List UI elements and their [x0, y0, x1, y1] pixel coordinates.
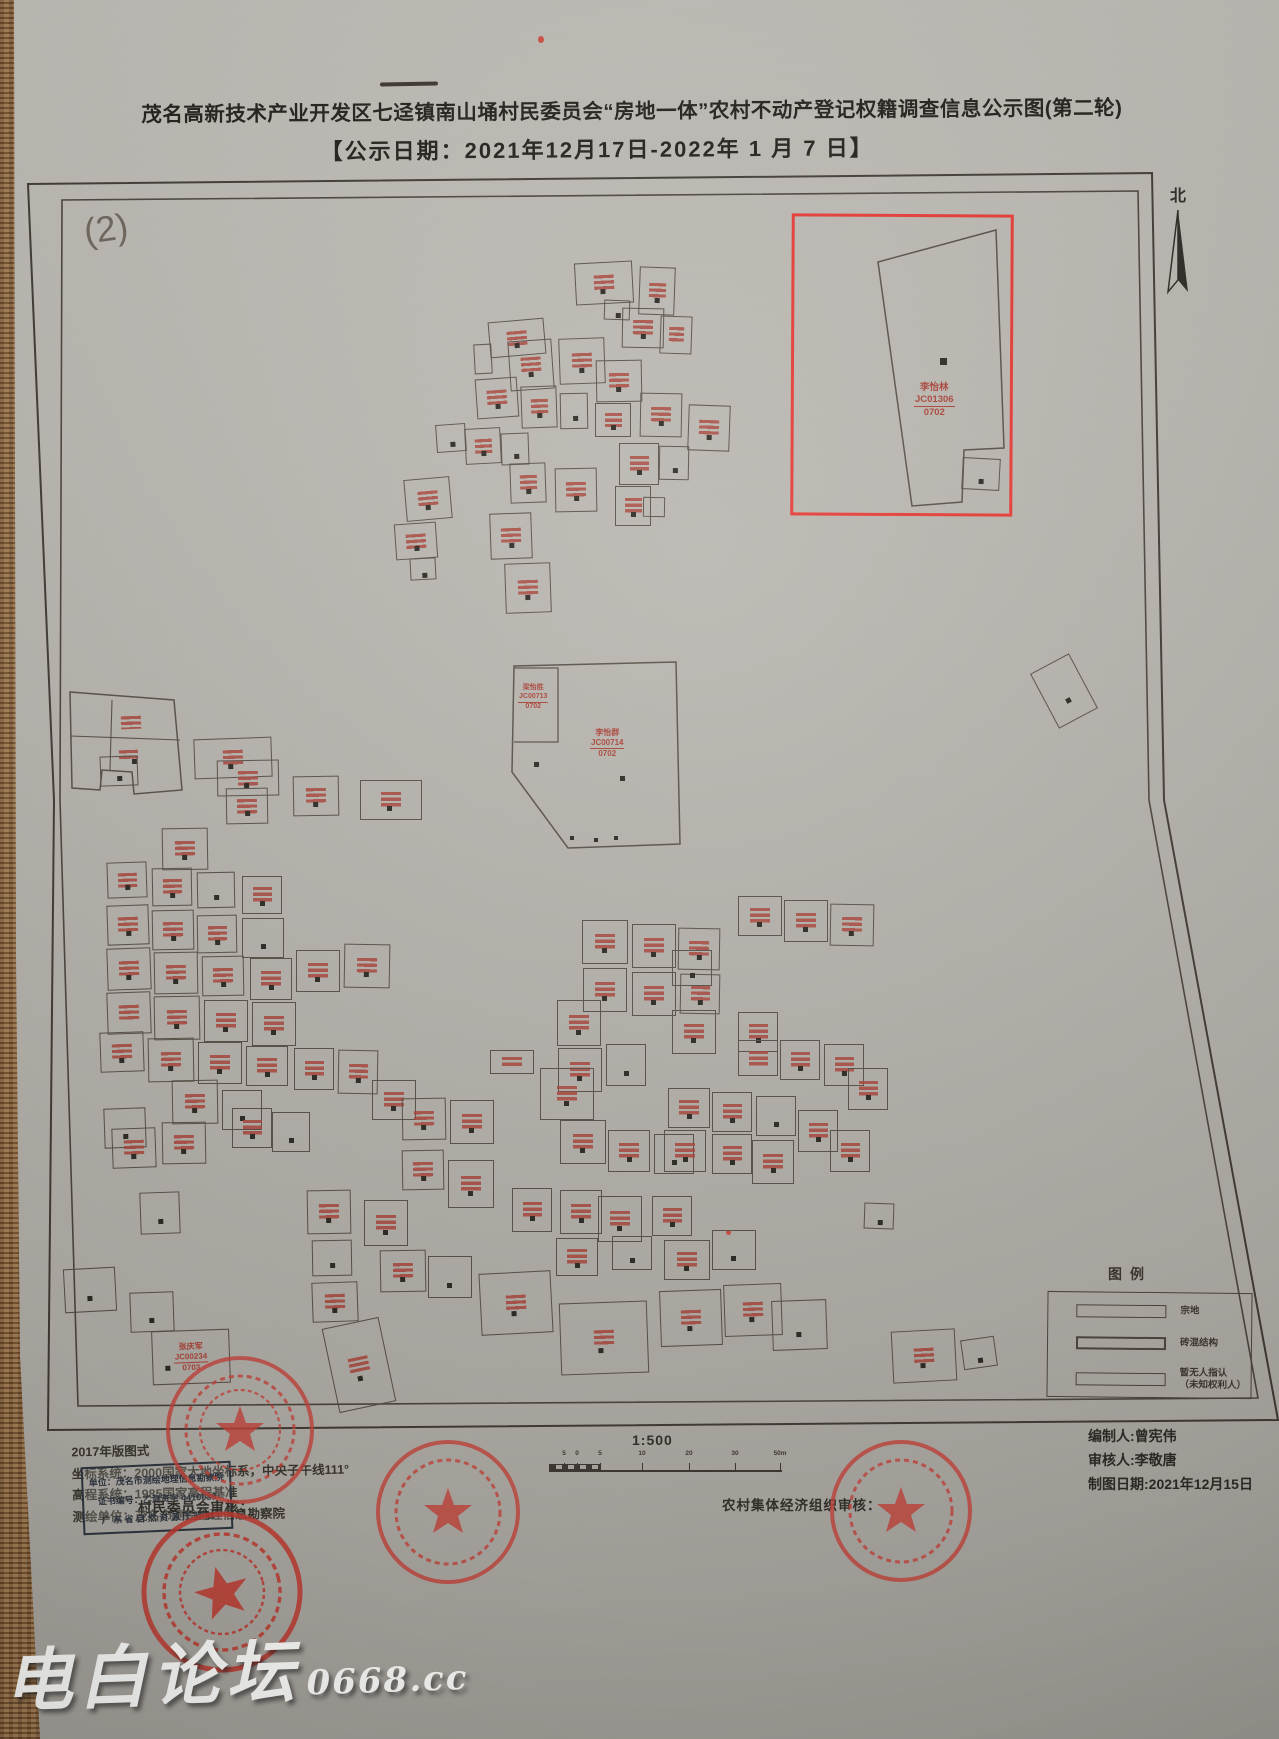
map-parcel — [738, 1040, 778, 1076]
building-marker — [637, 470, 642, 475]
map-parcel — [622, 308, 665, 349]
building-marker — [125, 885, 130, 890]
building-marker — [670, 1222, 675, 1227]
map-parcel — [672, 950, 712, 986]
map-parcel — [364, 1200, 408, 1246]
map-parcel — [162, 828, 209, 871]
map-parcel — [380, 1250, 427, 1293]
watermark-text: 电白论坛 — [3, 1632, 302, 1722]
building-marker — [119, 1058, 124, 1063]
map-parcel — [830, 1130, 870, 1172]
building-marker — [261, 944, 266, 949]
building-marker — [631, 512, 636, 517]
building-marker — [514, 454, 519, 459]
scale-tick-label: 5 — [598, 1450, 602, 1457]
reviewer: 审核人:李敬唐 — [1088, 1448, 1253, 1472]
map-parcel — [556, 1238, 598, 1276]
building-marker — [414, 546, 419, 551]
building-marker — [849, 931, 854, 936]
parcel-label-illegible — [348, 1355, 371, 1375]
building-marker — [940, 358, 947, 365]
map-parcel — [475, 377, 520, 420]
map-parcel — [435, 423, 467, 453]
building-marker — [796, 1332, 801, 1337]
map-parcel — [402, 1098, 447, 1141]
building-marker — [87, 1296, 92, 1301]
map-parcel — [659, 1289, 723, 1347]
map-parcel — [148, 1038, 195, 1083]
building-marker — [528, 372, 533, 377]
map-parcel — [1030, 653, 1098, 728]
building-marker — [171, 936, 176, 941]
map-parcel — [608, 1130, 650, 1172]
map-parcel — [771, 1299, 828, 1351]
building-marker — [495, 404, 500, 409]
building-marker — [673, 468, 678, 473]
map-parcel — [560, 393, 589, 429]
village-review-label: 村民委员会审核： — [138, 1496, 254, 1516]
building-marker — [391, 1106, 396, 1111]
building-marker — [848, 1157, 853, 1162]
legend-label-line2: （未知权利人） — [1180, 1380, 1247, 1392]
building-marker — [687, 1326, 692, 1331]
sheet-number: (2) — [81, 205, 130, 253]
parcel-label-illegible — [557, 1086, 577, 1102]
building-marker — [426, 505, 431, 510]
building-marker — [749, 1317, 754, 1322]
building-marker — [598, 1348, 603, 1353]
parcel-code: JC01306 — [914, 394, 955, 407]
map-parcel — [322, 1317, 397, 1413]
map-parcel — [595, 403, 631, 437]
building-marker — [611, 425, 616, 430]
parcel-code: JC00234 — [174, 1351, 209, 1363]
map-date: 制图日期:2021年12月15日 — [1088, 1472, 1253, 1496]
legend-item-unclaimed: 暂无人指认 （未知权利人） — [1076, 1366, 1247, 1392]
map-parcel — [643, 497, 665, 517]
map-parcel — [582, 920, 628, 964]
building-marker — [730, 1160, 735, 1165]
map-parcel — [752, 1140, 794, 1184]
owner-name: 李怡群 — [595, 728, 619, 737]
scale-tick-label: 10 — [638, 1450, 645, 1457]
legend-item-parcel: 宗地 — [1076, 1304, 1199, 1318]
building-marker — [602, 948, 607, 953]
title-block: 茂名高新技术产业开发区七迳镇南山埇村民委员会“房地一体”农村不动产登记权籍调查信… — [52, 90, 1212, 168]
scale-tick — [577, 1463, 578, 1470]
map-parcel — [596, 360, 643, 403]
map-parcel — [490, 1050, 534, 1074]
building-marker — [468, 1191, 473, 1196]
building-marker — [289, 1138, 294, 1143]
parcel-code: JC00714 — [590, 738, 624, 749]
legend-swatch-parcel — [1076, 1304, 1166, 1318]
building-marker — [630, 1258, 635, 1263]
building-marker — [683, 1157, 688, 1162]
building-marker — [730, 1118, 735, 1123]
map-parcel — [246, 1046, 288, 1086]
map-parcel — [172, 1080, 219, 1125]
parcel-label-illegible — [572, 353, 593, 370]
map-parcel — [428, 1256, 472, 1298]
north-arrow-icon — [1160, 206, 1196, 300]
building-marker — [816, 1137, 821, 1142]
map-parcel — [204, 1000, 248, 1042]
map-parcel — [619, 443, 659, 485]
building-marker — [573, 416, 578, 421]
building-marker — [978, 479, 983, 484]
map-parcel — [99, 755, 138, 786]
map-parcel — [961, 457, 1001, 491]
parcel-label-central-sub: 梁怡胜 JC00713 0702 — [518, 684, 548, 711]
map-parcel — [450, 1100, 494, 1144]
map-parcel — [106, 904, 149, 945]
building-marker — [655, 298, 660, 303]
building-marker — [803, 927, 808, 932]
building-marker — [364, 972, 369, 977]
building-marker — [481, 451, 486, 456]
map-parcel — [154, 996, 201, 1041]
building-marker — [771, 1168, 776, 1173]
building-marker — [149, 1318, 154, 1323]
building-marker — [269, 985, 274, 990]
map-parcel — [520, 385, 557, 428]
map-parcel — [659, 446, 690, 481]
building-marker — [774, 1122, 779, 1127]
building-marker — [641, 334, 646, 339]
map-parcel — [632, 924, 676, 968]
building-marker — [576, 1030, 581, 1035]
map-parcel — [848, 1068, 888, 1110]
map-parcel — [152, 910, 195, 951]
map-parcel — [664, 1240, 710, 1280]
map-parcel — [272, 1112, 310, 1152]
scale-tick-label: 50m — [773, 1450, 786, 1457]
scale-tick — [689, 1463, 690, 1470]
building-marker — [126, 931, 131, 936]
parcel-label-highlight: 李怡林 JC01306 0702 — [914, 382, 955, 419]
owner-name: 李怡林 — [920, 382, 949, 393]
building-marker — [570, 836, 574, 840]
map-parcel — [99, 1031, 144, 1073]
scale-bar: 50510203050m — [549, 1458, 782, 1472]
map-parcel — [560, 1190, 602, 1234]
map-outer-frame — [28, 173, 1278, 1430]
building-marker — [530, 1216, 535, 1221]
building-marker — [526, 489, 531, 494]
map-parcel — [738, 896, 782, 936]
building-marker — [330, 1263, 335, 1268]
map-parcel — [557, 1000, 601, 1046]
map-parcel — [111, 1127, 156, 1169]
scale-tick-label: 0 — [575, 1450, 579, 1457]
building-marker — [271, 1030, 276, 1035]
map-parcel — [659, 315, 692, 354]
building-marker — [659, 421, 664, 426]
map-parcel — [154, 952, 199, 995]
parcel-label-central: 李怡群 JC00714 0702 — [590, 728, 624, 759]
parcel-area: 0702 — [525, 703, 541, 710]
compiler: 编制人:曾宪伟 — [1088, 1424, 1253, 1448]
building-marker — [215, 940, 220, 945]
map-parcel — [652, 1196, 692, 1236]
legend-label: 暂无人指认 （未知权利人） — [1180, 1367, 1247, 1392]
building-marker — [356, 1078, 361, 1083]
building-marker — [357, 1376, 363, 1382]
building-marker — [250, 1134, 255, 1139]
building-marker — [173, 979, 178, 984]
building-marker — [315, 977, 320, 982]
red-ink-dot — [538, 36, 544, 43]
building-marker — [651, 952, 656, 957]
village-committee-seal — [374, 1438, 522, 1586]
map-parcel — [473, 344, 493, 375]
scale-tick — [735, 1463, 736, 1470]
north-indicator: 北 — [1158, 182, 1198, 305]
watermark: 电白论坛0668.cc — [2, 1610, 469, 1725]
building-marker — [594, 838, 598, 842]
map-parcel — [478, 1270, 553, 1336]
building-marker — [537, 413, 542, 418]
building-marker — [698, 1000, 703, 1005]
building-marker — [174, 1024, 179, 1029]
building-marker — [260, 901, 265, 906]
parcel-area: 0702 — [924, 407, 945, 418]
map-parcel — [780, 1040, 820, 1080]
collective-review-label: 农村集体经济组织审核： — [722, 1494, 882, 1514]
building-marker — [575, 1263, 580, 1268]
map-parcel — [512, 1188, 552, 1232]
map-parcel — [162, 1122, 207, 1165]
parcel-label-illegible — [506, 1294, 527, 1311]
building-marker — [684, 1266, 689, 1271]
building-marker — [217, 1069, 222, 1074]
parcel-label-illegible — [119, 1005, 140, 1022]
map-parcel — [540, 1068, 594, 1120]
map-parcel — [403, 476, 452, 522]
building-marker — [245, 811, 250, 816]
building-marker — [866, 1095, 871, 1100]
building-marker — [620, 776, 625, 781]
scale-tick — [780, 1463, 781, 1470]
map-parcel — [504, 562, 552, 614]
map-parcel — [784, 900, 828, 942]
legend-label: 宗地 — [1180, 1306, 1199, 1319]
map-parcel — [756, 1096, 796, 1136]
map-parcel — [344, 944, 391, 989]
map-parcel — [712, 1092, 752, 1132]
building-marker — [182, 855, 187, 860]
building-marker — [117, 776, 122, 781]
map-parcel — [612, 1236, 652, 1270]
legend-swatch-structure — [1076, 1336, 1166, 1350]
building-marker — [691, 1038, 696, 1043]
building-marker — [165, 1366, 170, 1371]
building-marker — [534, 762, 539, 767]
building-marker — [447, 1283, 452, 1288]
map-parcel — [242, 876, 282, 914]
map-parcel — [311, 1281, 358, 1323]
parcel-label-illegible — [610, 1211, 630, 1227]
building-marker — [383, 1230, 388, 1235]
building-marker — [223, 1027, 228, 1032]
building-marker — [170, 893, 175, 898]
map-parcel — [960, 1336, 998, 1370]
legend-label-line1: 暂无人指认 — [1180, 1367, 1228, 1378]
building-marker — [313, 802, 318, 807]
map-parcel — [293, 776, 340, 817]
scale-tick — [600, 1463, 601, 1470]
building-marker — [265, 1072, 270, 1077]
building-marker — [158, 1219, 163, 1224]
map-parcel — [668, 1088, 710, 1128]
building-marker — [511, 1311, 516, 1316]
parcel-label-illegible — [501, 528, 522, 545]
map-parcel — [106, 861, 147, 898]
map-parcel — [500, 433, 529, 466]
building-marker — [312, 1075, 317, 1080]
scale-tick-label: 20 — [685, 1450, 692, 1457]
scale-tick-label: 5 — [562, 1450, 566, 1457]
north-label: 北 — [1158, 182, 1198, 206]
parcel-label-illegible — [749, 1051, 768, 1066]
building-marker — [624, 1071, 629, 1076]
owner-name: 张庆军 — [178, 1341, 202, 1351]
building-marker — [400, 1277, 405, 1282]
parcel-label-illegible — [376, 1215, 396, 1231]
legend-title: 图例 — [1108, 1264, 1152, 1284]
watermark-site: 0668.cc — [306, 1658, 469, 1704]
building-marker — [564, 1101, 569, 1106]
parcel-label-illegible — [121, 715, 141, 729]
map-parcel — [672, 1010, 716, 1054]
building-marker — [181, 1149, 186, 1154]
building-marker — [509, 543, 514, 548]
building-marker — [192, 1108, 197, 1113]
map-parcel — [252, 1002, 296, 1046]
map-parcel — [139, 1191, 180, 1234]
map-parcel — [560, 1120, 606, 1164]
building-marker — [579, 1218, 584, 1223]
building-marker — [878, 1220, 883, 1225]
parcel-label-illegible — [668, 327, 684, 344]
building-marker — [616, 387, 621, 392]
map-parcel — [242, 918, 284, 958]
map-parcel — [152, 868, 193, 907]
building-marker — [731, 1256, 736, 1261]
map-parcel — [197, 915, 238, 954]
parcel-label-illegible — [594, 1330, 615, 1347]
building-marker — [574, 496, 579, 501]
map-parcel — [555, 468, 598, 513]
map-parcel — [307, 1190, 352, 1235]
map-parcel — [864, 1202, 895, 1229]
building-marker — [126, 975, 131, 980]
building-marker — [450, 442, 455, 447]
map-parcel — [891, 1328, 958, 1383]
building-marker — [221, 982, 226, 987]
map-parcel — [202, 956, 245, 997]
map-parcel — [712, 1134, 752, 1174]
parcel-label-zhang: 张庆军 JC00234 0703 — [173, 1341, 209, 1373]
map-parcel-zhang: 张庆军 JC00234 0703 — [151, 1329, 231, 1386]
map-parcel — [509, 462, 546, 503]
map-parcel — [830, 904, 875, 947]
building-marker — [214, 895, 219, 900]
building-marker — [627, 1157, 632, 1162]
owner-name: 梁怡胜 — [523, 684, 544, 691]
map-parcel — [360, 780, 422, 820]
building-marker — [616, 313, 621, 318]
scale-tick — [564, 1463, 565, 1470]
map-parcel — [489, 512, 533, 559]
building-marker — [421, 1125, 426, 1130]
building-marker — [617, 1226, 622, 1231]
map-parcel — [687, 404, 731, 451]
map-parcel — [559, 1300, 649, 1375]
map-parcel — [664, 1130, 706, 1172]
building-marker — [579, 368, 584, 373]
map-parcel — [250, 958, 292, 1000]
building-marker — [707, 435, 712, 440]
scale-tick — [642, 1463, 643, 1470]
map-parcel — [464, 427, 502, 465]
building-marker — [422, 573, 427, 578]
building-marker — [580, 1148, 585, 1153]
parcel-label-illegible — [648, 283, 666, 300]
scale-tick-label: 30 — [731, 1450, 738, 1457]
building-marker — [690, 973, 695, 978]
building-marker — [332, 1308, 337, 1313]
scale-ratio: 1:500 — [632, 1432, 673, 1448]
map-parcel — [402, 1150, 445, 1191]
parcel-label-illegible — [743, 1302, 764, 1319]
building-marker — [1065, 697, 1072, 704]
map-parcel — [606, 1044, 646, 1086]
map-parcel — [129, 1291, 174, 1333]
building-marker — [326, 1218, 331, 1223]
map-parcel — [63, 1267, 117, 1314]
map-parcel — [109, 705, 152, 738]
parcel-code: JC00713 — [518, 693, 548, 703]
map-parcel — [198, 1042, 242, 1084]
parcel-label-illegible — [699, 420, 720, 437]
building-marker — [757, 922, 762, 927]
paper-sheet: 茂名高新技术产业开发区七迳镇南山埇村民委员会“房地一体”农村不动产登记权籍调查信… — [12, 0, 1279, 1739]
legend-box: 宗地 砖混结构 暂无人指认 （未知权利人） — [1046, 1291, 1252, 1399]
building-marker — [131, 1154, 136, 1159]
legend-label: 砖混结构 — [1180, 1338, 1218, 1351]
building-marker — [602, 996, 607, 1001]
map-parcel — [296, 950, 340, 992]
building-marker — [525, 595, 530, 600]
page-title: 茂名高新技术产业开发区七迳镇南山埇村民委员会“房地一体”农村不动产登记权籍调查信… — [52, 90, 1212, 128]
map-parcel — [106, 991, 151, 1035]
credits-block: 编制人:曾宪伟 审核人:李敬唐 制图日期:2021年12月15日 — [1088, 1424, 1253, 1496]
building-marker — [842, 1071, 847, 1076]
map-parcel — [448, 1160, 494, 1208]
notice-date-line: 【公示日期：2021年12月17日-2022年 1 月 7 日】 — [52, 128, 1212, 168]
map-parcel — [232, 1108, 272, 1148]
legend-item-structure: 砖混结构 — [1076, 1336, 1218, 1350]
parcel-label-illegible — [502, 1057, 522, 1067]
legend-swatch-unclaimed — [1076, 1372, 1166, 1386]
parcel-label-illegible — [681, 1310, 702, 1327]
building-marker — [469, 1128, 474, 1133]
building-marker — [687, 1114, 692, 1119]
parcel-label-illegible — [461, 1176, 481, 1192]
map-parcel — [409, 557, 436, 580]
